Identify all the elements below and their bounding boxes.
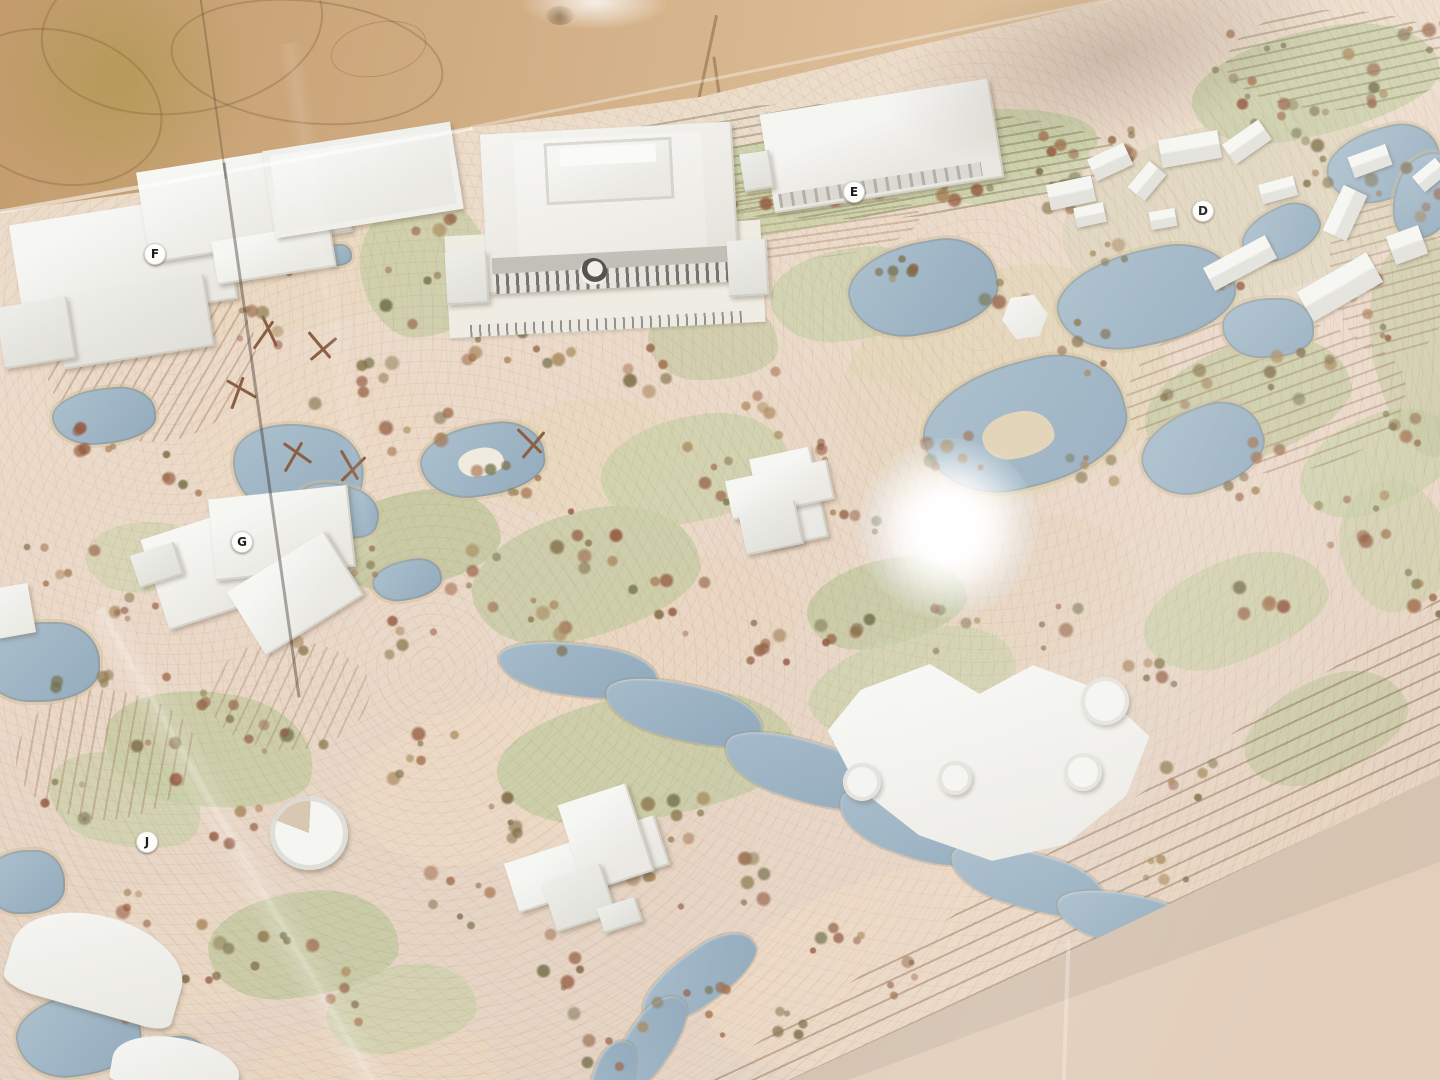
building-f-annex — [0, 297, 76, 369]
label-badge-d: D — [1192, 200, 1214, 222]
village-house — [1158, 130, 1222, 168]
flat-roof-hall — [262, 122, 463, 239]
village-house — [1149, 208, 1178, 230]
village-house — [1128, 161, 1167, 201]
rooftop-drum — [938, 761, 972, 795]
village-house — [1073, 202, 1107, 228]
rooftop-drum — [843, 763, 881, 801]
rooftop-drum — [1064, 753, 1102, 791]
site-model-photo: F G E D J — [0, 0, 1440, 1080]
fan-building — [810, 624, 1159, 884]
label-badge-f: F — [144, 243, 166, 265]
temple-side-wing — [445, 251, 490, 305]
label-badge-g: G — [231, 531, 253, 553]
rooftop-drum — [1081, 677, 1129, 725]
village-house — [1087, 143, 1133, 182]
village-house — [1222, 120, 1272, 165]
crescent-building — [108, 1027, 244, 1080]
village-house — [1258, 176, 1298, 205]
village-house — [1297, 252, 1383, 321]
round-pavilion — [266, 792, 351, 874]
crescent-building — [0, 894, 194, 1034]
label-badge-e: E — [843, 181, 865, 203]
village-house — [1386, 225, 1428, 265]
village-house — [1323, 185, 1368, 241]
village-house — [1347, 144, 1392, 178]
temple-side-wing — [727, 239, 770, 297]
label-badge-j: J — [136, 831, 158, 853]
hex-pavilion — [999, 293, 1050, 341]
hall-e-annex — [739, 150, 775, 192]
building-layer — [0, 0, 1440, 1080]
village-house — [1203, 235, 1277, 291]
village-house — [1412, 158, 1440, 193]
edge-building — [0, 583, 36, 639]
